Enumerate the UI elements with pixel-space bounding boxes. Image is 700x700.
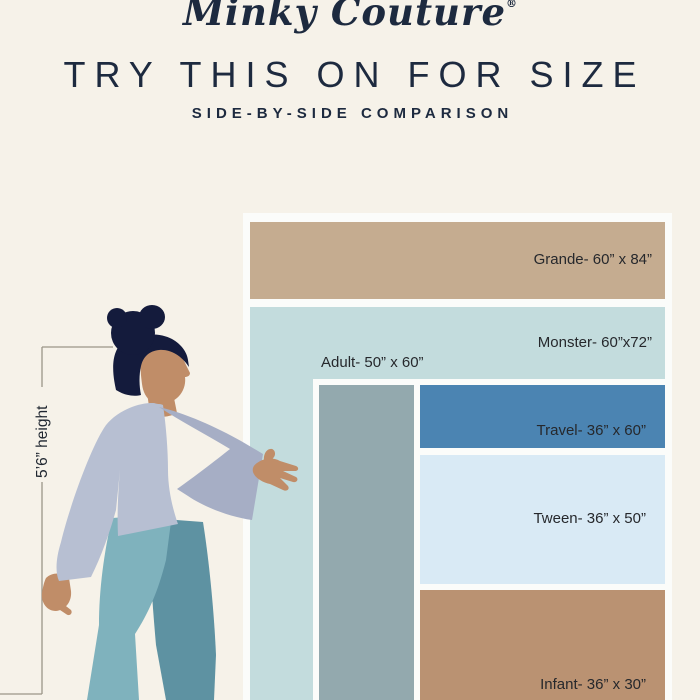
infographic: Minky Couture® TRY THIS ON FOR SIZE SIDE… [0,0,700,700]
height-label: 5’6” height [34,405,51,478]
tween-blanket-rect: Tween- 36” x 50” [420,455,665,584]
monster-label: Monster- 60”x72” [538,335,652,352]
page-title: TRY THIS ON FOR SIZE [0,54,700,96]
page-subtitle: SIDE-BY-SIDE COMPARISON [0,105,700,122]
nested-sizes-group: Travel- 36” x 60” Tween- 36” x 50” Infan… [313,379,672,700]
adult-blanket-rect [319,385,414,700]
travel-label: Travel- 36” x 60” [537,423,646,440]
adult-label: Adult- 50” x 60” [321,354,424,371]
pointing-arm-sleeve [159,407,263,520]
travel-blanket-rect: Travel- 36” x 60” [420,385,665,448]
infant-blanket-rect: Infant- 36” x 30” [420,590,665,700]
tween-label: Tween- 36” x 50” [533,511,646,528]
grande-blanket-rect: Grande- 60” x 84” [250,222,665,299]
woman-illustration: 5’6” height [0,300,320,700]
infant-label: Infant- 36” x 30” [540,677,646,694]
grande-label: Grande- 60” x 84” [534,252,652,269]
brand-logo-text: Minky Couture [183,0,506,34]
registered-mark-icon: ® [506,0,517,10]
brand-logo: Minky Couture® [0,0,700,34]
